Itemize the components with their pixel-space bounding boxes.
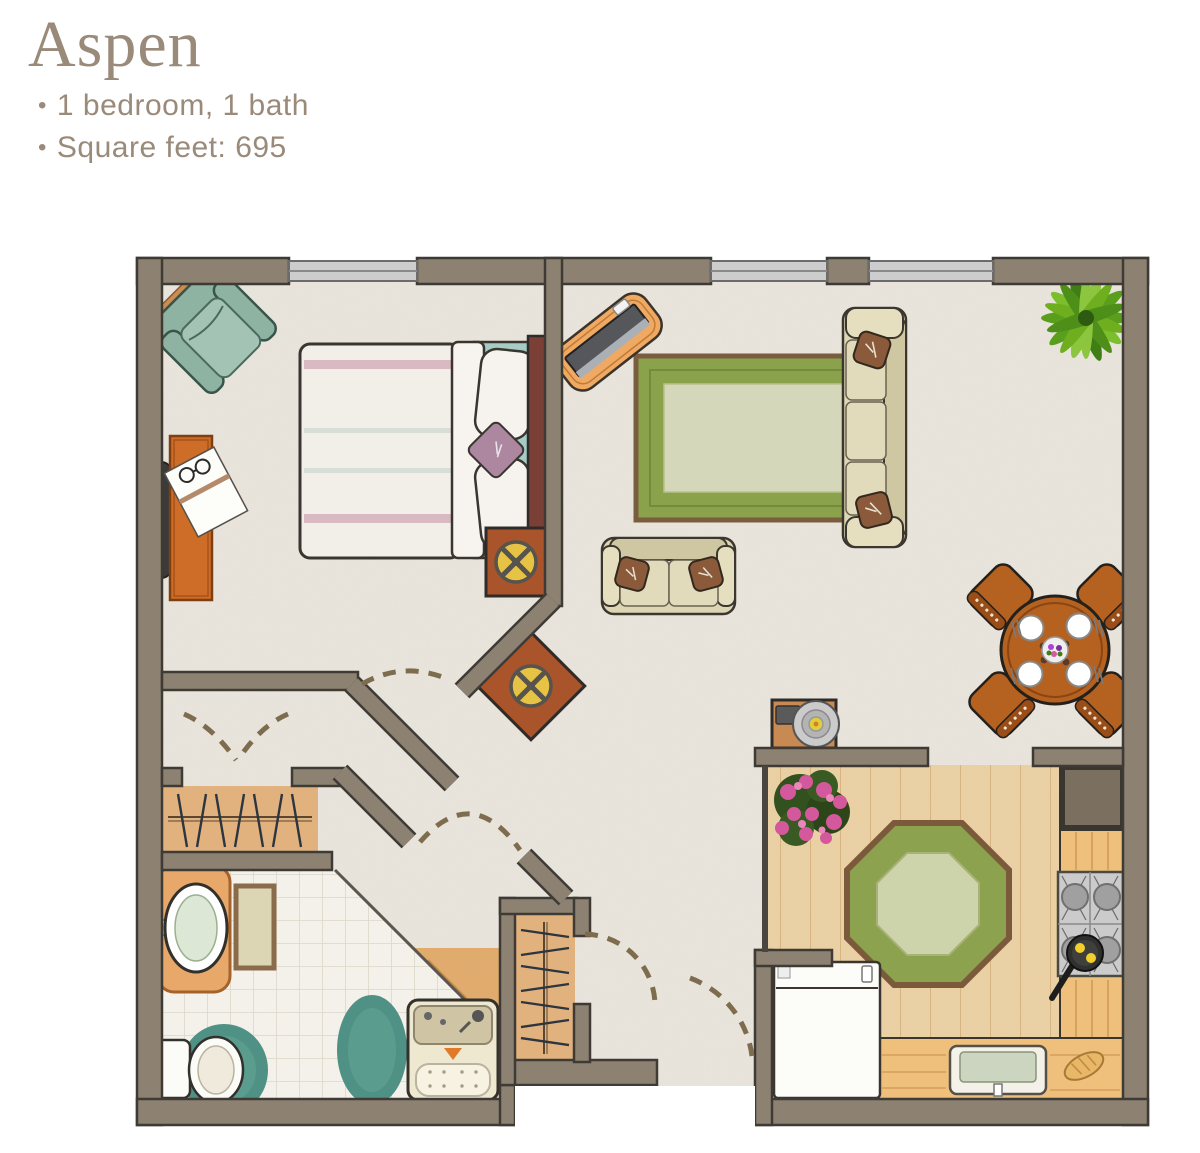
kitchen-sink — [950, 1046, 1046, 1096]
egg-icon — [1075, 943, 1085, 953]
wall-bottom-bath — [137, 1099, 515, 1125]
kitchen-floor-divider-line — [762, 766, 768, 952]
wall-left — [137, 258, 162, 1125]
wall-bottom-kitchen — [755, 1099, 1148, 1125]
wall-entry-closet-right-b — [574, 1004, 590, 1062]
exterior-mask — [515, 1086, 755, 1128]
shower-head-icon — [472, 1010, 484, 1022]
window — [289, 261, 417, 281]
refrigerator — [774, 962, 880, 1098]
window — [711, 261, 827, 281]
living-rug-center — [664, 384, 866, 492]
centerpiece — [1042, 637, 1068, 663]
fridge-handle — [862, 966, 872, 982]
shower-rug-center — [348, 1008, 396, 1092]
wall-bedroom-south — [162, 672, 358, 690]
wall-entry-closet-left — [500, 898, 515, 1085]
octagon-rug-center — [877, 853, 979, 955]
entry-closet — [515, 914, 575, 1062]
throw-pillow — [688, 556, 725, 593]
duvet-stripe — [304, 360, 456, 369]
duvet-stripe — [304, 514, 456, 523]
throw-pillow — [855, 491, 894, 530]
wall-right — [1123, 258, 1148, 1125]
wall-bedroom-divider — [545, 258, 562, 606]
wall-top-2 — [417, 258, 711, 284]
side-table — [772, 700, 839, 748]
wall-bathroom-top — [162, 852, 332, 870]
wall-kitchen-stub — [755, 950, 832, 966]
sofa — [843, 308, 906, 547]
duvet — [300, 344, 460, 558]
shower-seat — [416, 1064, 490, 1096]
loveseat — [602, 538, 735, 614]
wall-top-3 — [827, 258, 869, 284]
throw-pillow — [614, 556, 651, 593]
pantry-cabinet — [1062, 767, 1123, 828]
window — [869, 261, 993, 281]
wall-kitchen-top-a — [755, 748, 928, 766]
egg-icon — [1086, 953, 1096, 963]
wall-kitchen-top-b — [1033, 748, 1123, 766]
walk-in-shower — [408, 1000, 498, 1100]
bath-mat — [236, 886, 274, 968]
wall-entry-closet-right-a — [574, 898, 590, 936]
wall-closet-front-a — [162, 768, 182, 786]
sink-basin — [175, 895, 217, 961]
wall-entry-closet-top — [500, 898, 577, 914]
toilet-bowl-inner — [198, 1046, 234, 1094]
nightstand — [486, 528, 546, 596]
floor-plan — [0, 0, 1200, 1153]
wall-kitchen-left — [755, 950, 772, 1125]
wall-bottom-entry — [500, 1060, 657, 1085]
bedroom-closet — [162, 786, 318, 852]
sink-faucet — [994, 1084, 1002, 1096]
